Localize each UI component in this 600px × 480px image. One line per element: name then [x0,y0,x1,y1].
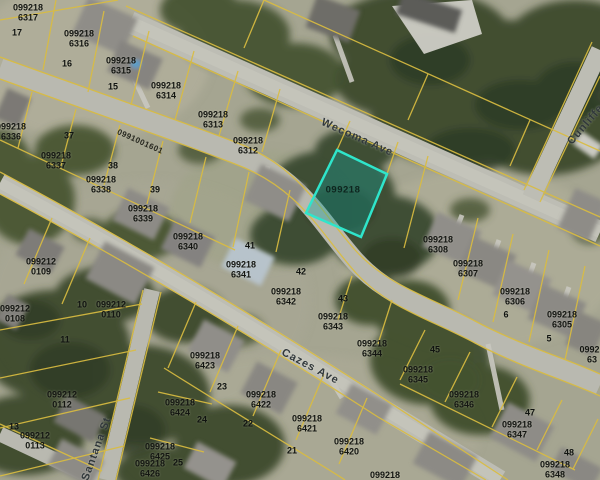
parcel-map[interactable]: 099218 6317099218 6316099218 6315099218 … [0,0,600,480]
aerial-imagery [0,0,600,480]
pool [131,60,141,68]
